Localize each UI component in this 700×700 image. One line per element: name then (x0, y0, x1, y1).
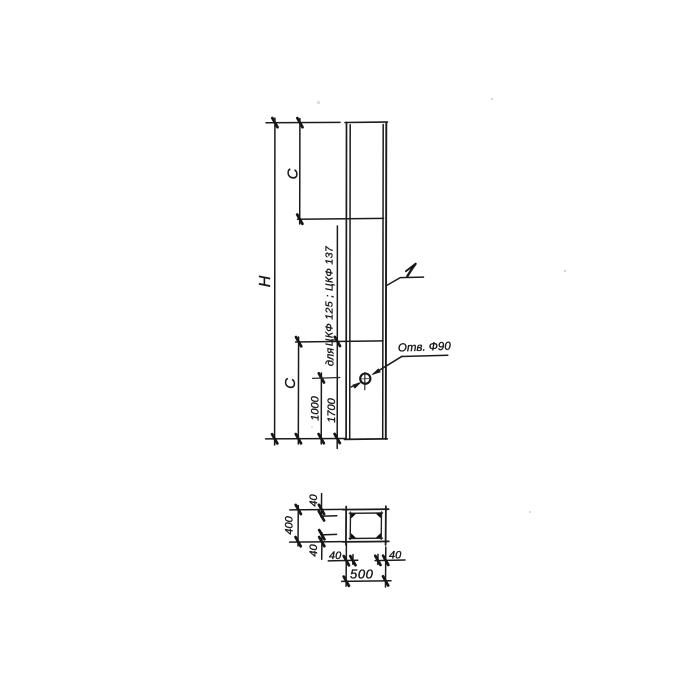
svg-text:500: 500 (350, 567, 374, 582)
svg-text:H: H (257, 275, 274, 287)
svg-text:ЦКФ 125 ; ЦКФ 137: ЦКФ 125 ; ЦКФ 137 (324, 245, 336, 346)
svg-text:40: 40 (308, 544, 320, 557)
svg-text:C: C (282, 378, 299, 389)
svg-text:1700: 1700 (326, 397, 338, 422)
svg-text:40: 40 (389, 550, 402, 562)
svg-text:1000: 1000 (310, 395, 322, 420)
svg-text:400: 400 (284, 515, 296, 534)
svg-text:для: для (325, 348, 337, 366)
svg-text:40: 40 (308, 494, 320, 507)
svg-text:C: C (285, 168, 302, 179)
svg-text:Отв. Ф90: Отв. Ф90 (398, 341, 452, 355)
svg-text:40: 40 (329, 550, 342, 562)
